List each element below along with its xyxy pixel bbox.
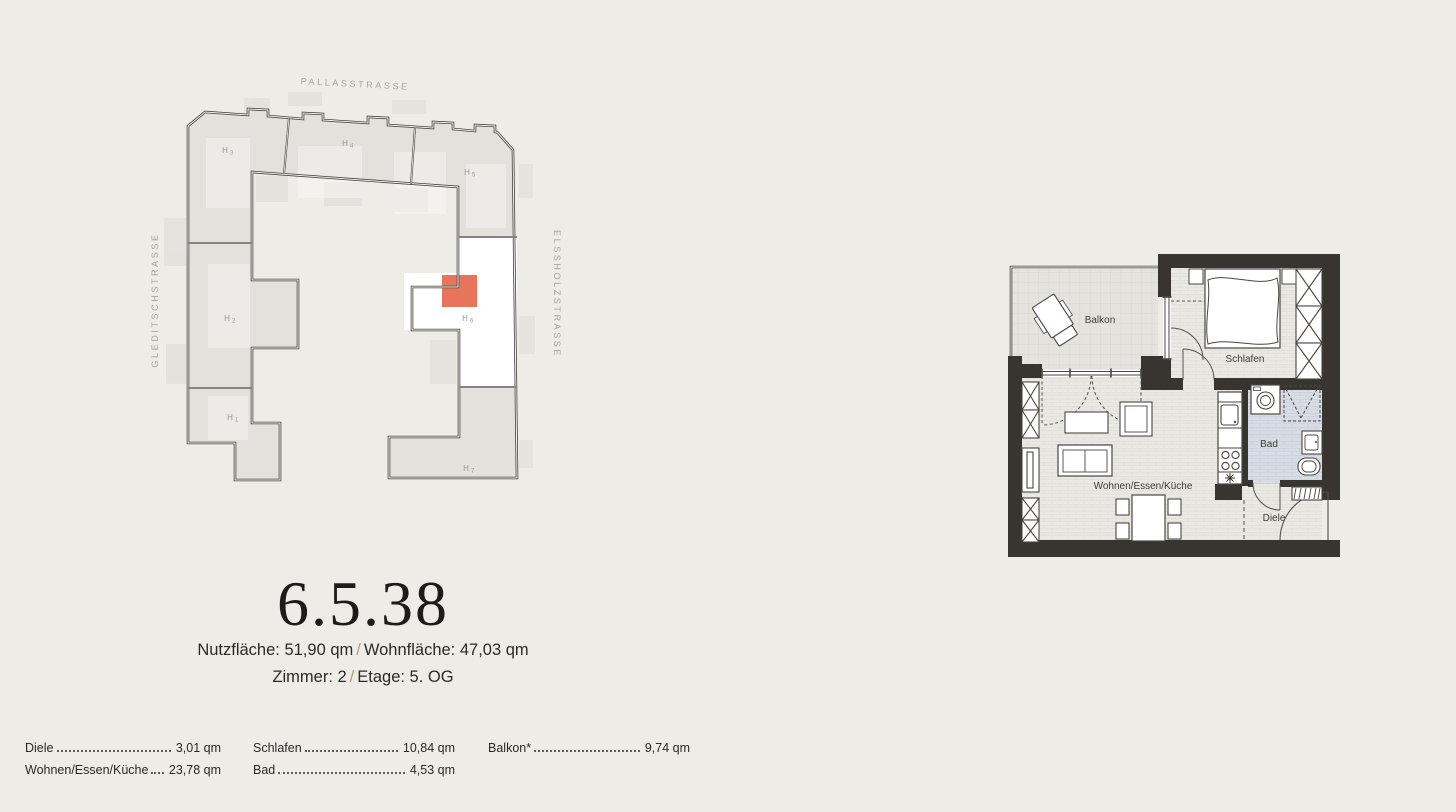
site-plan: H1 H2 H3 H4 H5 H6 H7 PALLASSTRASSE GLEDI…	[148, 68, 578, 498]
room-value: 10,84 qm	[403, 741, 455, 755]
room-value: 4,53 qm	[410, 763, 455, 777]
separator: /	[353, 641, 364, 659]
separator: /	[347, 668, 358, 686]
table-row: Wohnen/Essen/Küche 23,78 qm	[25, 763, 221, 785]
street-label-elssholzstrasse: ELSSHOLZSTRASSE	[552, 230, 562, 358]
shoe-cabinet-icon	[1292, 487, 1322, 500]
bed	[1189, 269, 1296, 348]
street-label-pallasstrasse: PALLASSTRASSE	[300, 76, 410, 92]
sofa	[1058, 445, 1112, 476]
room-label: Bad	[253, 763, 275, 777]
label-schlafen: Schlafen	[1226, 354, 1265, 365]
label-diele: Diele	[1263, 513, 1286, 524]
room-label: Schlafen	[253, 741, 302, 755]
table-row: Bad 4,53 qm	[253, 763, 455, 785]
washing-machine-icon	[1251, 385, 1280, 414]
nutzflaeche-value: Nutzfläche: 51,90 qm	[197, 641, 353, 659]
dotted-leader	[57, 750, 171, 752]
label-wohnen: Wohnen/Essen/Küche	[1094, 481, 1193, 492]
dotted-leader	[278, 772, 405, 774]
bath-sink-icon	[1302, 431, 1322, 454]
sideboard	[1065, 412, 1108, 433]
street-label-gleditschstrasse: GLEDITSCHSTRASSE	[150, 232, 160, 367]
wardrobes	[1296, 269, 1322, 379]
unit-info-block: 6.5.38 Nutzfläche: 51,90 qm/Wohnfläche: …	[148, 572, 578, 690]
armchair	[1120, 402, 1152, 436]
table-row: Schlafen 10,84 qm	[253, 741, 455, 763]
wall-shafts	[1022, 382, 1039, 542]
room-table-column-3: Balkon* 9,74 qm	[488, 741, 690, 763]
wohnflaeche-value: Wohnfläche: 47,03 qm	[364, 641, 529, 659]
room-label: Diele	[25, 741, 54, 755]
dotted-leader	[151, 772, 163, 774]
table-row: Balkon* 9,74 qm	[488, 741, 690, 763]
room-label: Balkon*	[488, 741, 531, 755]
floor-plan: Balkon Schlafen Wohnen/Essen/Küche Bad D…	[1008, 252, 1340, 557]
section-h6-highlight	[404, 237, 517, 387]
dotted-leader	[305, 750, 398, 752]
label-balkon: Balkon	[1085, 315, 1116, 326]
label-bad: Bad	[1260, 439, 1278, 450]
etage-value: Etage: 5. OG	[357, 668, 453, 686]
room-table-column-1: Diele 3,01 qm Wohnen/Essen/Küche 23,78 q…	[25, 741, 221, 785]
unit-area-line: Nutzfläche: 51,90 qm/Wohnfläche: 47,03 q…	[148, 638, 578, 663]
unit-number: 6.5.38	[148, 572, 578, 636]
room-value: 9,74 qm	[645, 741, 690, 755]
fridge-icon	[1225, 473, 1235, 483]
room-value: 23,78 qm	[169, 763, 221, 777]
dotted-leader	[534, 750, 640, 752]
unit-detail-line: Zimmer: 2/Etage: 5. OG	[148, 665, 578, 690]
table-row: Diele 3,01 qm	[25, 741, 221, 763]
room-label: Wohnen/Essen/Küche	[25, 763, 148, 777]
room-table-column-2: Schlafen 10,84 qm Bad 4,53 qm	[253, 741, 455, 785]
zimmer-value: Zimmer: 2	[272, 668, 346, 686]
unit-location-marker[interactable]	[442, 275, 477, 307]
radiator-icon	[1027, 452, 1033, 488]
room-value: 3,01 qm	[176, 741, 221, 755]
toilet-icon	[1298, 458, 1320, 475]
kitchen-units	[1218, 392, 1242, 484]
